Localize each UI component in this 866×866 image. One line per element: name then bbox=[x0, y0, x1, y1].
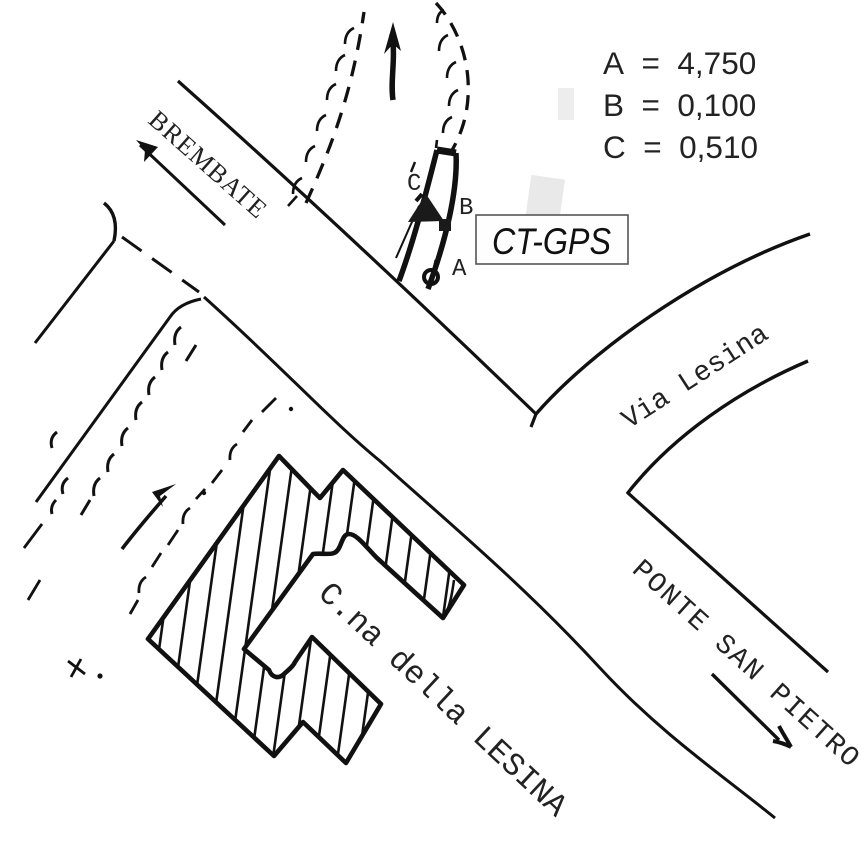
svg-text:C: C bbox=[407, 171, 421, 198]
svg-text:A = 4,750: A = 4,750 bbox=[603, 45, 756, 81]
svg-text:A: A bbox=[452, 256, 467, 283]
svg-text:C = 0,510: C = 0,510 bbox=[603, 129, 758, 165]
svg-text:CT-GPS: CT-GPS bbox=[492, 221, 611, 262]
svg-text:B: B bbox=[459, 195, 473, 222]
svg-text:B = 0,100: B = 0,100 bbox=[603, 87, 756, 123]
